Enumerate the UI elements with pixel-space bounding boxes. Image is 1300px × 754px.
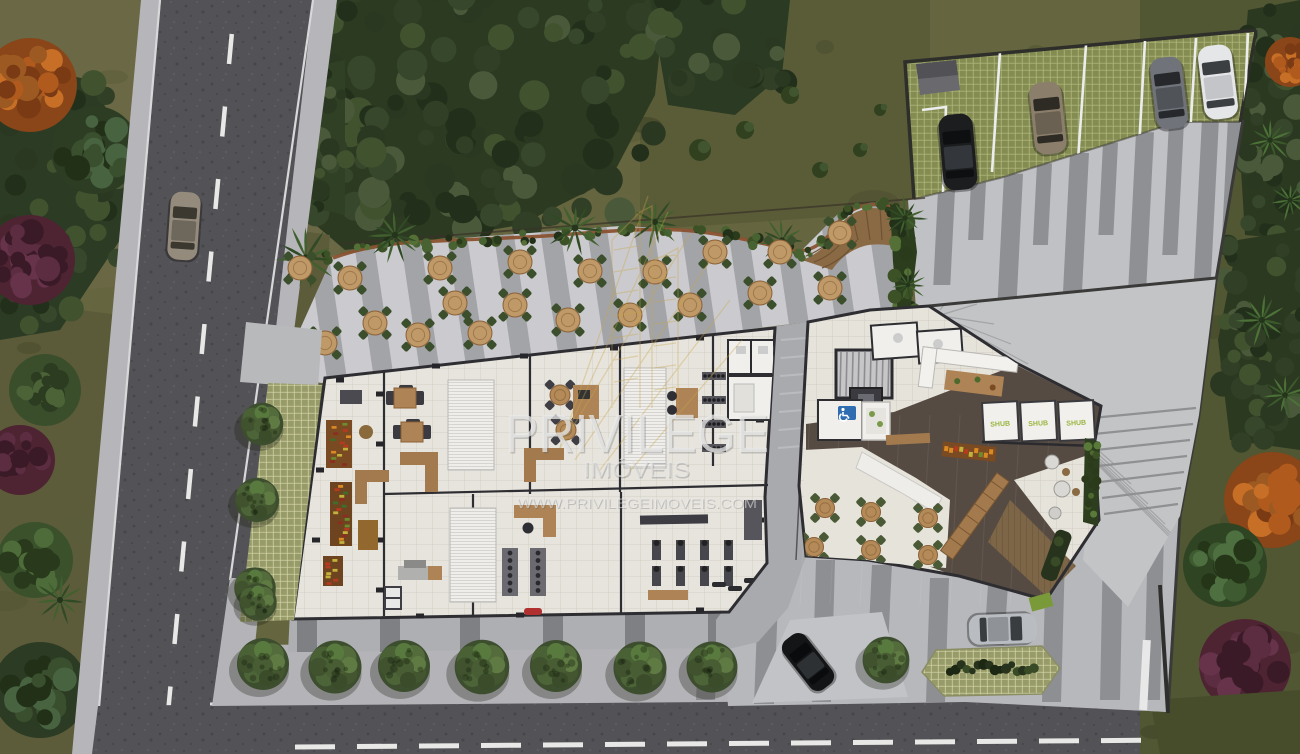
svg-text:PRIVILEGE: PRIVILEGE xyxy=(505,404,769,464)
svg-text:SHUB: SHUB xyxy=(1066,420,1086,428)
svg-text:IMÓVEIS: IMÓVEIS xyxy=(583,457,690,482)
svg-text:SHUB: SHUB xyxy=(1028,420,1048,428)
svg-text:SHUB: SHUB xyxy=(990,421,1010,429)
svg-text:WWW.PRIVILEGEIMOVEIS.COM: WWW.PRIVILEGEIMOVEIS.COM xyxy=(517,496,757,511)
